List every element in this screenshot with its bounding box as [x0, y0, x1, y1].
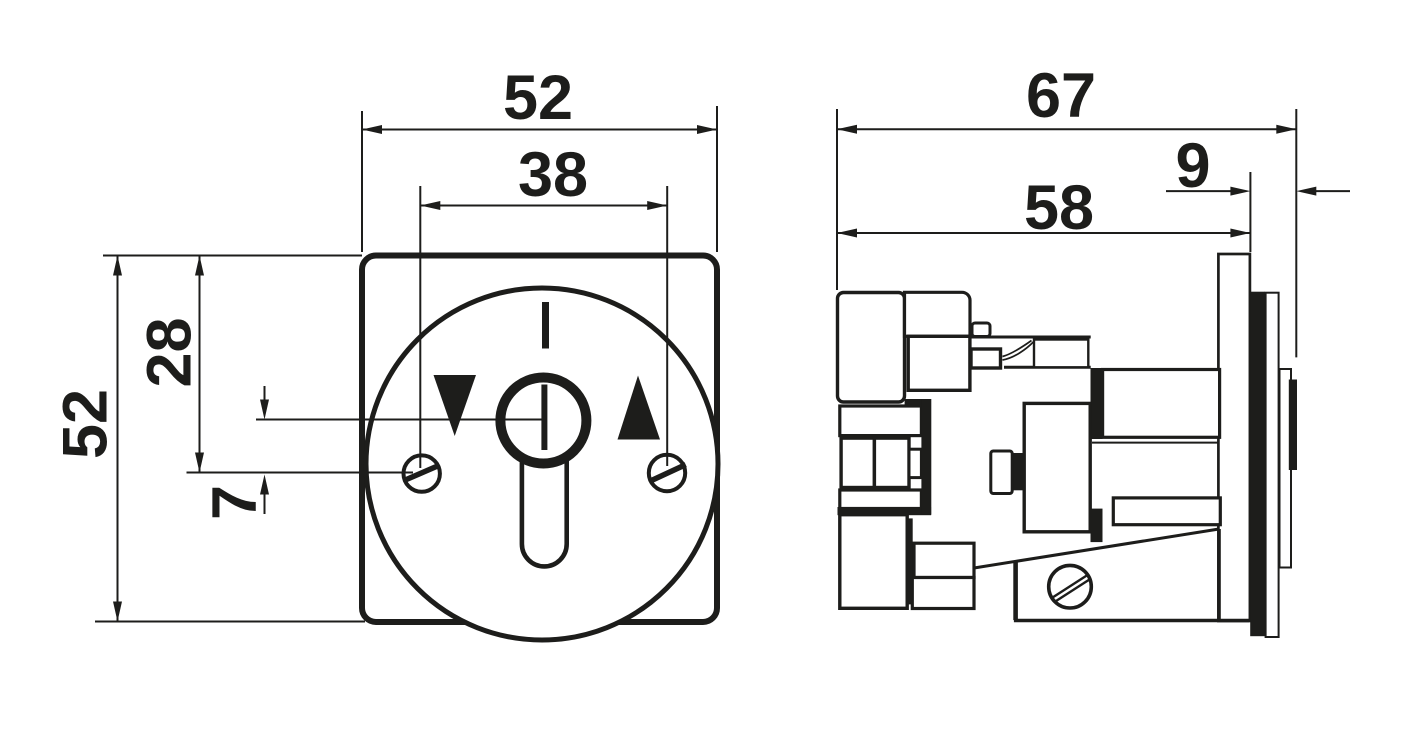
svg-text:58: 58	[1024, 173, 1094, 243]
svg-text:52: 52	[503, 63, 573, 133]
svg-text:7: 7	[200, 485, 270, 520]
svg-text:52: 52	[51, 389, 121, 459]
svg-text:9: 9	[1175, 131, 1210, 201]
svg-text:67: 67	[1026, 61, 1096, 131]
svg-text:28: 28	[135, 317, 205, 387]
svg-text:38: 38	[518, 140, 588, 210]
